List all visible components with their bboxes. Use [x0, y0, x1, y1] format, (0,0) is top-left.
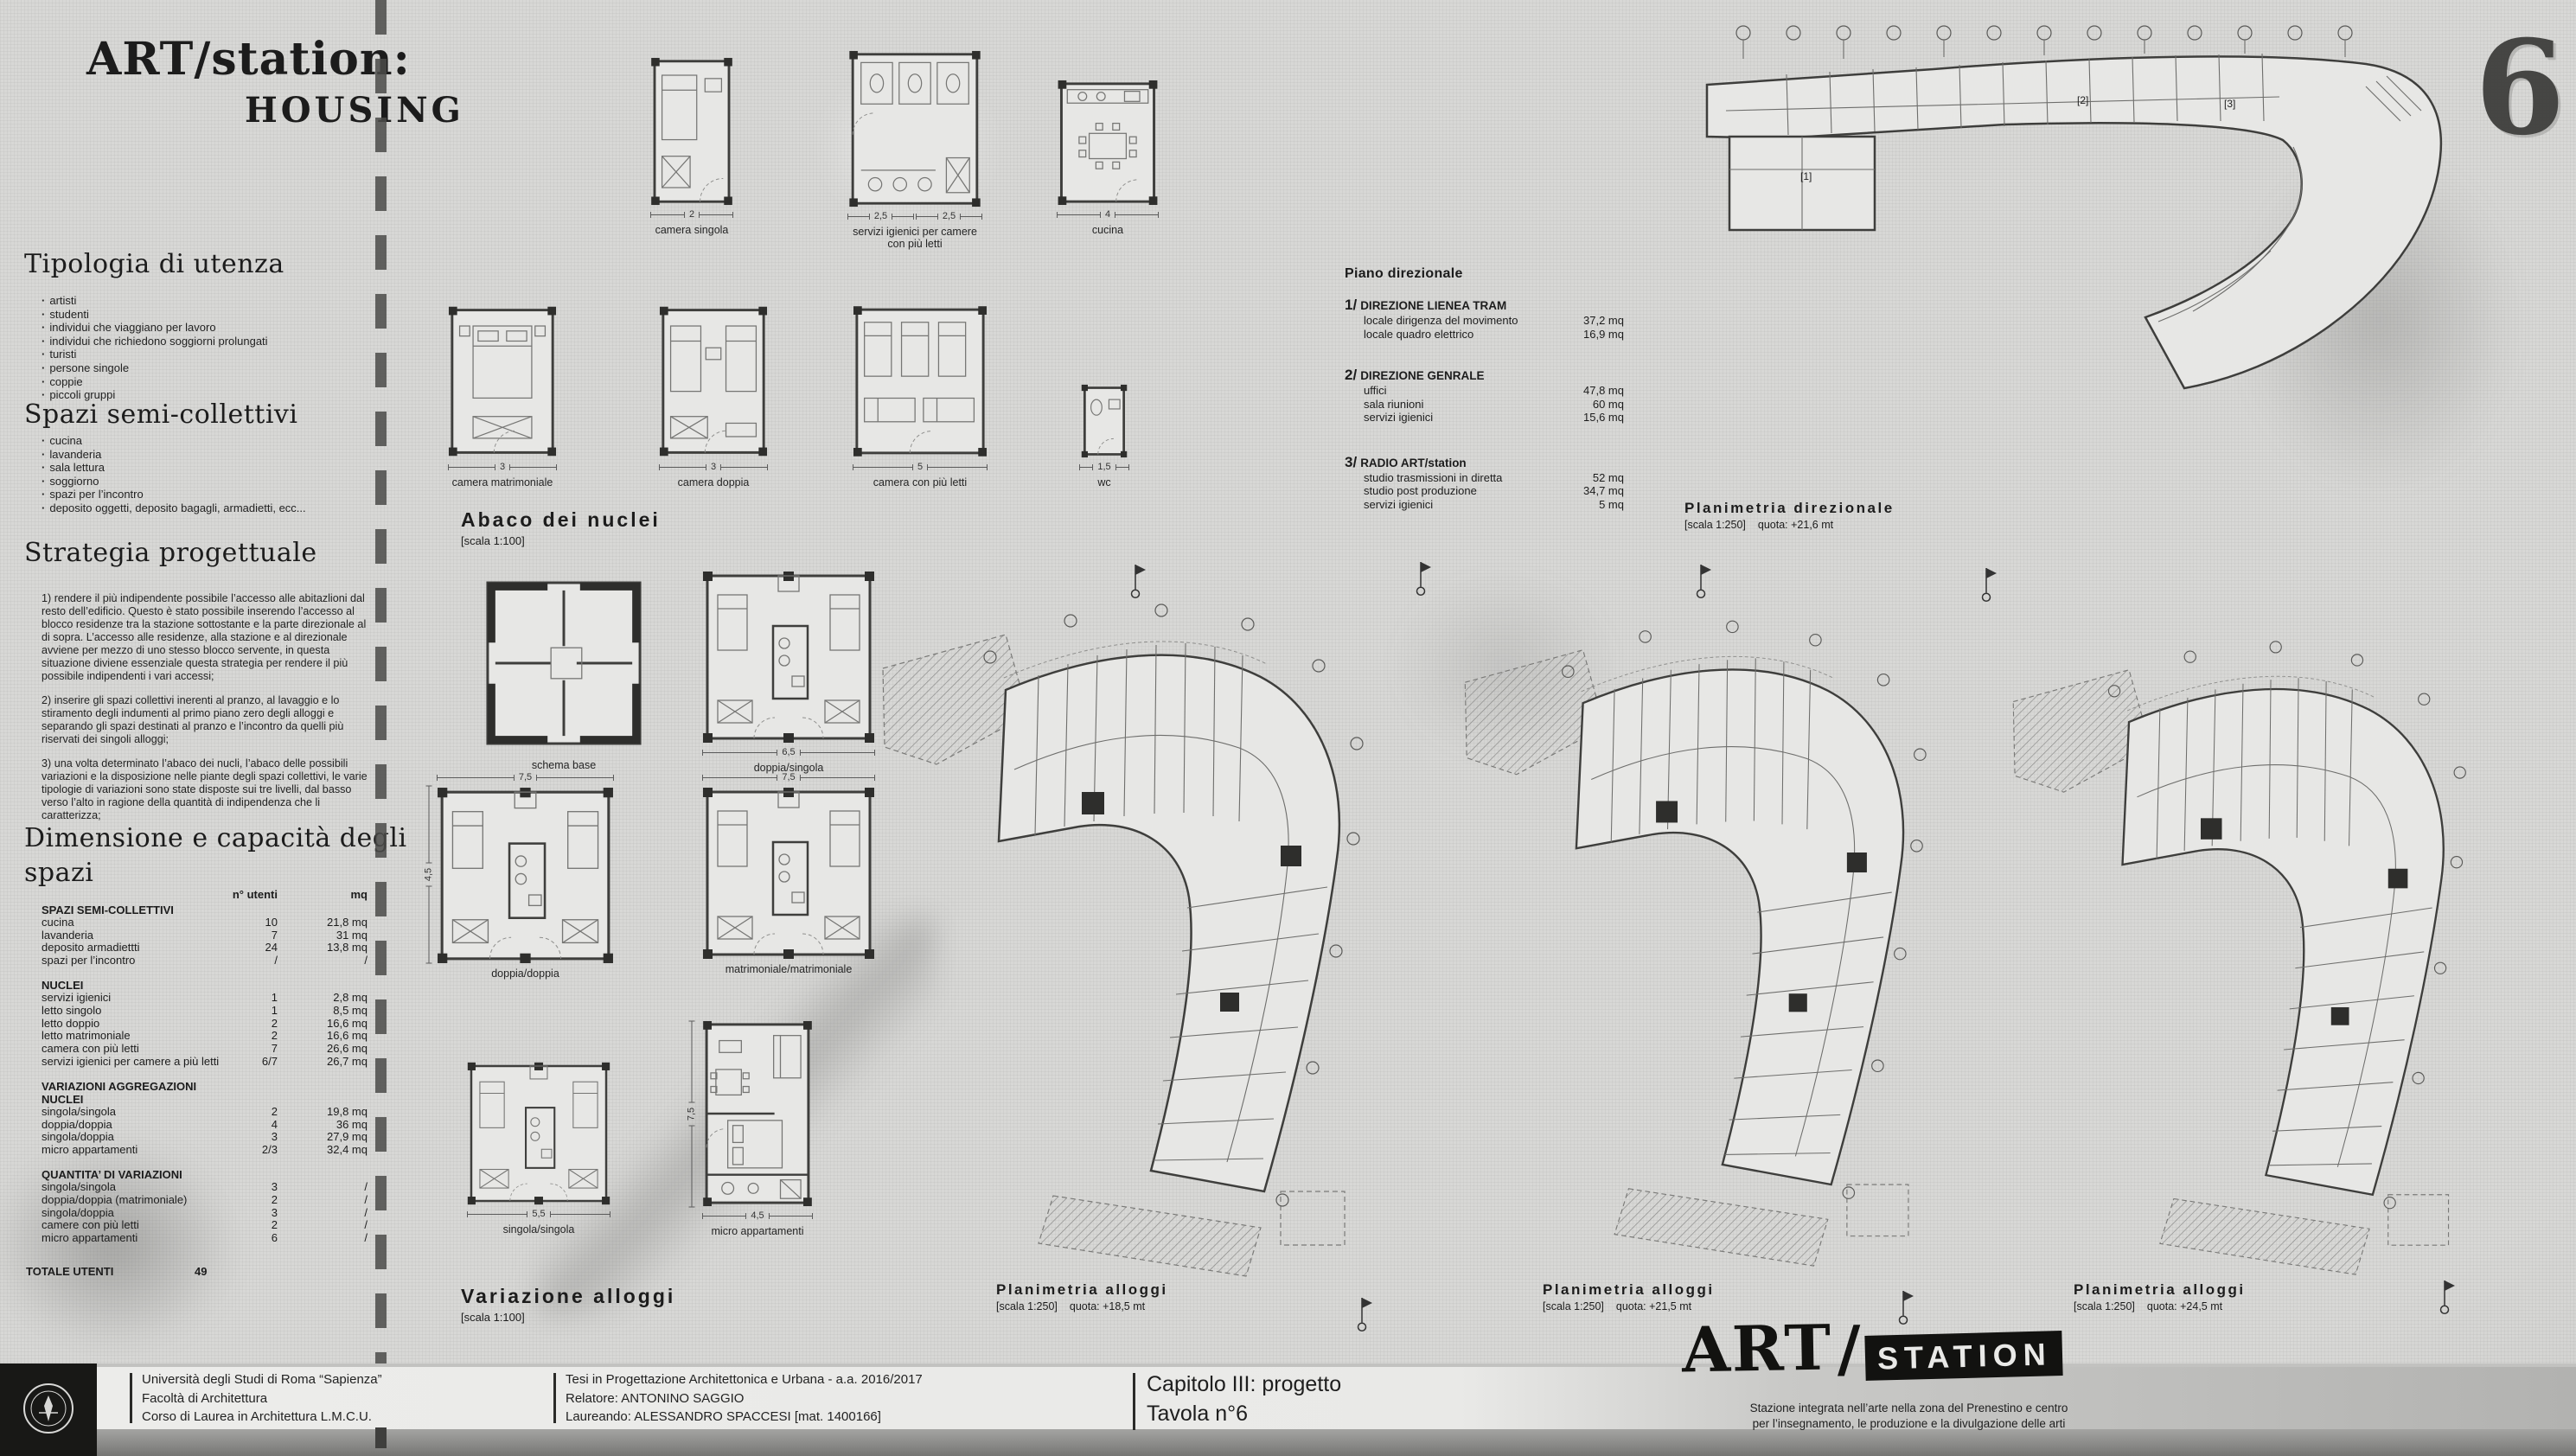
table-row: cucina1021,8 mq: [42, 916, 368, 929]
abaco-heading: Abaco dei nuclei [scala 1:100]: [461, 508, 661, 547]
pd-group: 1/DIREZIONE LIENEA TRAM locale dirigenza…: [1345, 297, 1624, 341]
section-flag-icon: [1688, 560, 1714, 600]
plan-label: servizi igienici per camere con più lett…: [847, 226, 982, 250]
footer-university: Università degli Studi di Roma “Sapienza…: [142, 1370, 382, 1427]
pd-row: servizi igienici15,6 mq: [1345, 411, 1624, 425]
plan-matrimoniale-matrimoniale: 7,5 matrimoniale/matrimoniale: [702, 772, 875, 975]
list-item: soggiorno: [42, 475, 306, 489]
paragraph: 3) una volta determinato l’abaco dei nuc…: [42, 757, 368, 822]
logo-art: ART: [1681, 1316, 1832, 1381]
sapienza-emblem: [18, 1378, 79, 1439]
table-row: micro appartamenti2/332,4 mq: [42, 1144, 368, 1157]
capacity-table: n° utenti mq SPAZI SEMI-COLLETTIVI cucin…: [42, 889, 368, 1279]
tipologia-list: artisti studenti individui che viaggiano…: [42, 294, 268, 402]
plan-label: matrimoniale/matrimoniale: [702, 963, 875, 975]
dashed-separator-tail: [375, 1427, 387, 1448]
table-row: camera con più letti726,6 mq: [42, 1043, 368, 1056]
pd-row: uffici47,8 mq: [1345, 384, 1624, 398]
plan-label: schema base: [483, 759, 645, 771]
list-item: turisti: [42, 348, 268, 361]
logo-station: STATION: [1865, 1331, 2063, 1381]
table-row: micro appartamenti6/: [42, 1232, 368, 1245]
plan-label: doppia/doppia: [437, 967, 614, 980]
board-title: ART/station:: [86, 33, 411, 86]
pd-row: locale quadro elettrico16,9 mq: [1345, 328, 1624, 342]
dimension-line-vertical: 7,5: [687, 1021, 698, 1208]
footer-divider: [130, 1373, 132, 1423]
table-row: deposito armadiettti2413,8 mq: [42, 942, 368, 955]
dimension-line: 1,5: [1079, 462, 1129, 473]
table-row: servizi igienici per camere a più letti6…: [42, 1056, 368, 1069]
table-row: doppia/doppia (matrimoniale)2/: [42, 1194, 368, 1207]
plan-wc: 1,5 wc: [1079, 384, 1129, 489]
plan-servizi-igienici: 2,5 2,5 servizi igienici per camere con …: [847, 50, 982, 250]
list-item: sala lettura: [42, 461, 306, 475]
col-header-utenti: n° utenti: [226, 889, 278, 902]
plan-cucina: 4 cucina: [1057, 80, 1159, 236]
section-heading-strategia: Strategia progettuale: [24, 538, 317, 568]
plan-label: camera con più letti: [853, 476, 988, 489]
list-item: lavanderia: [42, 448, 306, 462]
piano-direzionale-block: Piano direzionale 1/DIREZIONE LIENEA TRA…: [1345, 266, 1624, 511]
section-heading-dimensione: Dimensione e capacità degli spazi: [24, 821, 431, 891]
pd-row: servizi igienici5 mq: [1345, 498, 1624, 512]
section-flag-icon: [1973, 564, 1999, 603]
board-subtitle: HOUSING: [245, 90, 464, 131]
dimension-line: 5,5: [467, 1209, 610, 1220]
dimension-line: 4,5: [702, 1210, 813, 1222]
logo-tagline: Stazione integrata nell’arte nella zona …: [1673, 1401, 2145, 1431]
dimension-line: 5: [853, 462, 988, 473]
list-item: cucina: [42, 434, 306, 448]
piano-direzionale-heading: Piano direzionale: [1345, 266, 1624, 282]
table-group-label: QUANTITA’ DI VARIAZIONI: [42, 1168, 232, 1181]
presentation-board: ART/station: HOUSING 6 Tipologia di uten…: [0, 0, 2576, 1456]
dimension-line: 2: [650, 209, 733, 220]
dimension-line: 7,5: [702, 772, 875, 783]
plan-camera-matrimoniale: 3 camera matrimoniale: [448, 304, 557, 489]
section-flag-icon: [1408, 558, 1434, 597]
plan-singola-singola: 5,5 singola/singola: [467, 1062, 610, 1236]
planimetria-alloggi-drawing-3: [2003, 624, 2483, 1276]
art-station-logo: ART / STATION: [1682, 1318, 2062, 1380]
table-row: lavanderia731 mq: [42, 929, 368, 942]
list-item: persone singole: [42, 361, 268, 375]
paragraph: 2) inserire gli spazi collettivi inerent…: [42, 694, 368, 746]
list-item: coppie: [42, 375, 268, 389]
dimension-line-vertical: 4,5: [424, 786, 435, 964]
plan-camera-doppia: 3 camera doppia: [659, 304, 768, 489]
plan-label: micro appartamenti: [702, 1225, 813, 1237]
planimetria-alloggi-label-1: Planimetria alloggi [scala 1:250]quota: …: [996, 1281, 1168, 1312]
plan-schema-base: schema base: [483, 578, 645, 771]
dimension-line: 3: [659, 462, 768, 473]
section-flag-icon: [2432, 1276, 2458, 1316]
plan-camera-singola: 2 camera singola: [650, 57, 733, 236]
sheet-number: 6: [2475, 12, 2565, 164]
footer-divider: [1133, 1373, 1135, 1430]
table-row: camere con più letti2/: [42, 1219, 368, 1232]
list-item: individui che richiedono soggiorni prolu…: [42, 335, 268, 348]
table-group-label: NUCLEI: [42, 979, 232, 992]
section-heading-tipologia: Tipologia di utenza: [24, 249, 284, 279]
paragraph: 1) rendere il più indipendente possibile…: [42, 592, 368, 683]
list-item: artisti: [42, 294, 268, 308]
table-row: singola/doppia327,9 mq: [42, 1131, 368, 1144]
plan-doppia-singola: 6,5 doppia/singola: [702, 571, 875, 774]
table-row: letto matrimoniale216,6 mq: [42, 1030, 368, 1043]
footer-divider: [553, 1373, 556, 1423]
section-heading-spazi: Spazi semi-collettivi: [24, 399, 297, 430]
planimetria-direzionale-label: Planimetria direzionale [scala 1:250]quo…: [1684, 500, 1895, 531]
dimension-line: 3: [448, 462, 557, 473]
pd-row: studio post produzione34,7 mq: [1345, 484, 1624, 498]
table-group-label: SPAZI SEMI-COLLETTIVI: [42, 904, 232, 916]
dimension-line: 4: [1057, 209, 1159, 220]
total-label: TOTALE UTENTI: [26, 1266, 195, 1279]
footer-logo-block: [0, 1363, 97, 1456]
table-row: singola/singola3/: [42, 1181, 368, 1194]
list-item: deposito oggetti, deposito bagagli, arma…: [42, 501, 306, 515]
section-flag-icon: [1349, 1293, 1375, 1333]
table-group-label: VARIAZIONI AGGREGAZIONI NUCLEI: [42, 1080, 232, 1106]
planimetria-alloggi-drawing-1: [872, 586, 1382, 1278]
table-row: doppia/doppia436 mq: [42, 1119, 368, 1132]
dashed-separator: [375, 0, 387, 1363]
spazi-list: cucina lavanderia sala lettura soggiorno…: [42, 434, 306, 515]
total-value: 49: [195, 1266, 262, 1279]
strategia-paragraphs: 1) rendere il più indipendente possibile…: [42, 592, 368, 833]
list-item: spazi per l’incontro: [42, 488, 306, 501]
pd-row: studio trasmissioni in diretta52 mq: [1345, 471, 1624, 485]
plan-camera-piu-letti: 5 camera con più letti: [853, 304, 988, 489]
planimetria-alloggi-label-3: Planimetria alloggi [scala 1:250]quota: …: [2074, 1281, 2246, 1312]
table-row: singola/doppia3/: [42, 1207, 368, 1220]
variazione-heading: Variazione alloggi [scala 1:100]: [461, 1285, 675, 1324]
table-total-row: TOTALE UTENTI 49: [26, 1266, 368, 1279]
logo-slash: /: [1838, 1318, 1860, 1380]
table-header-row: n° utenti mq: [42, 889, 368, 902]
plan-label: singola/singola: [467, 1223, 610, 1236]
plan-label: wc: [1079, 476, 1129, 489]
planimetria-direzionale-drawing: [1674, 17, 2482, 394]
plan-label: camera singola: [650, 224, 733, 236]
dimension-line: 7,5: [437, 772, 614, 783]
footer-bottom-strip: [97, 1429, 2576, 1456]
plan-label: cucina: [1057, 224, 1159, 236]
list-item: individui che viaggiano per lavoro: [42, 321, 268, 335]
plan-label: camera matrimoniale: [448, 476, 557, 489]
plan-micro-appartamenti: 4,5 micro appartamenti: [702, 1020, 813, 1237]
plan-doppia-doppia: 7,5 doppia/doppia: [437, 772, 614, 980]
table-row: letto doppio216,6 mq: [42, 1018, 368, 1031]
pd-group: 2/DIREZIONE GENRALE uffici47,8 mq sala r…: [1345, 367, 1624, 425]
col-header-mq: mq: [278, 889, 368, 902]
dimension-line: 6,5: [702, 747, 875, 758]
table-row: servizi igienici12,8 mq: [42, 992, 368, 1005]
footer-chapter: Capitolo III: progetto Tavola n°6: [1147, 1370, 1341, 1428]
pd-row: locale dirigenza del movimento37,2 mq: [1345, 314, 1624, 328]
list-item: studenti: [42, 308, 268, 322]
table-row: spazi per l’incontro//: [42, 955, 368, 967]
pd-group: 3/RADIO ART/station studio trasmissioni …: [1345, 454, 1624, 512]
table-row: letto singolo18,5 mq: [42, 1005, 368, 1018]
footer-thesis: Tesi in Progettazione Architettonica e U…: [566, 1370, 923, 1427]
pd-row: sala riunioni60 mq: [1345, 398, 1624, 412]
plan-label: camera doppia: [659, 476, 768, 489]
dimension-line: 2,5 2,5: [847, 211, 982, 222]
section-flag-icon: [1122, 560, 1148, 600]
table-row: singola/singola219,8 mq: [42, 1106, 368, 1119]
planimetria-alloggi-drawing-2: [1454, 603, 1944, 1268]
planimetria-alloggi-label-2: Planimetria alloggi [scala 1:250]quota: …: [1543, 1281, 1715, 1312]
